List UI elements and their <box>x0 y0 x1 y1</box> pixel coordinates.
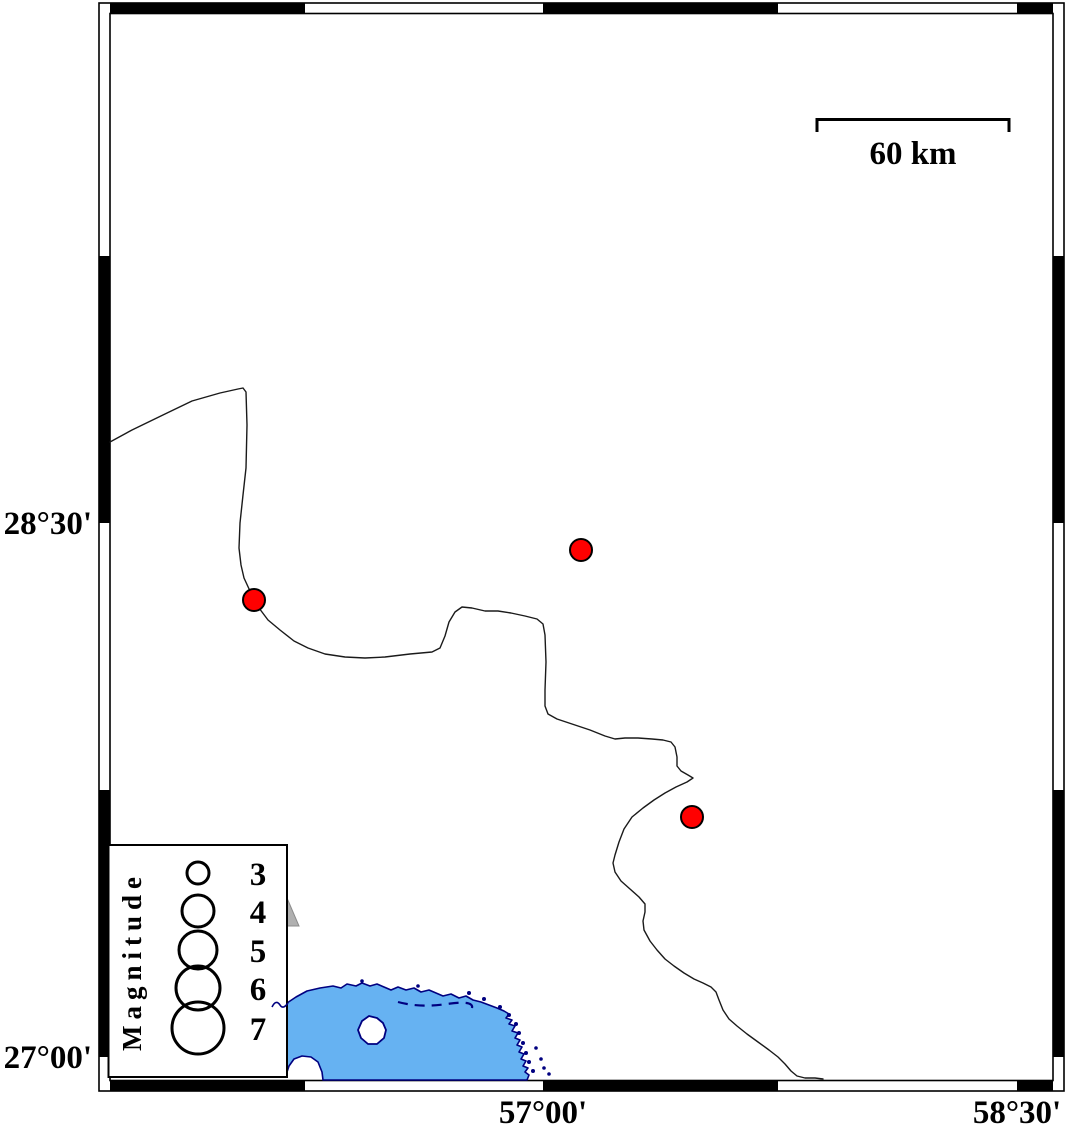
epicenter-dot <box>243 589 265 611</box>
axis-label-lon-left: 57°00' <box>499 1095 587 1129</box>
frame-segment <box>1053 256 1064 523</box>
frame-segment <box>1053 790 1064 1057</box>
frame-segment <box>110 1081 305 1092</box>
scale-bar-label: 60 km <box>869 136 956 172</box>
legend-entry-label: 3 <box>250 857 267 893</box>
map-page: Magnitude 3 4 5 6 7 60 km 28°30' 27°00' … <box>0 0 1066 1129</box>
legend-labels: 3 4 5 6 7 <box>250 857 267 1048</box>
frame-segment <box>110 3 305 14</box>
legend-entry-label: 6 <box>250 972 267 1008</box>
axis-label-lat-upper: 28°30' <box>4 506 92 542</box>
frame-segment <box>1017 1081 1053 1092</box>
legend-title: Magnitude <box>117 871 147 1051</box>
scale-bar: 60 km <box>817 120 1009 173</box>
frame-segment <box>1017 3 1053 14</box>
legend-entry-label: 7 <box>250 1012 267 1048</box>
scale-bar-bracket <box>817 120 1009 133</box>
epicenters <box>243 539 703 828</box>
axis-label-lon-right: 58°30' <box>973 1095 1061 1129</box>
frame-segment <box>543 1081 778 1092</box>
frame-segment <box>99 256 110 523</box>
sea <box>287 979 551 1080</box>
axis-label-lat-lower: 27°00' <box>4 1040 92 1076</box>
epicenter-dot <box>570 539 592 561</box>
frame-segment <box>543 3 778 14</box>
sea-polygon <box>287 983 529 1080</box>
epicenter-dot <box>681 806 703 828</box>
legend-entry-label: 5 <box>250 934 267 970</box>
magnitude-legend: Magnitude 3 4 5 6 7 <box>109 845 288 1077</box>
map-canvas: Magnitude 3 4 5 6 7 60 km 28°30' 27°00' … <box>0 0 1066 1129</box>
legend-entry-label: 4 <box>250 895 267 931</box>
